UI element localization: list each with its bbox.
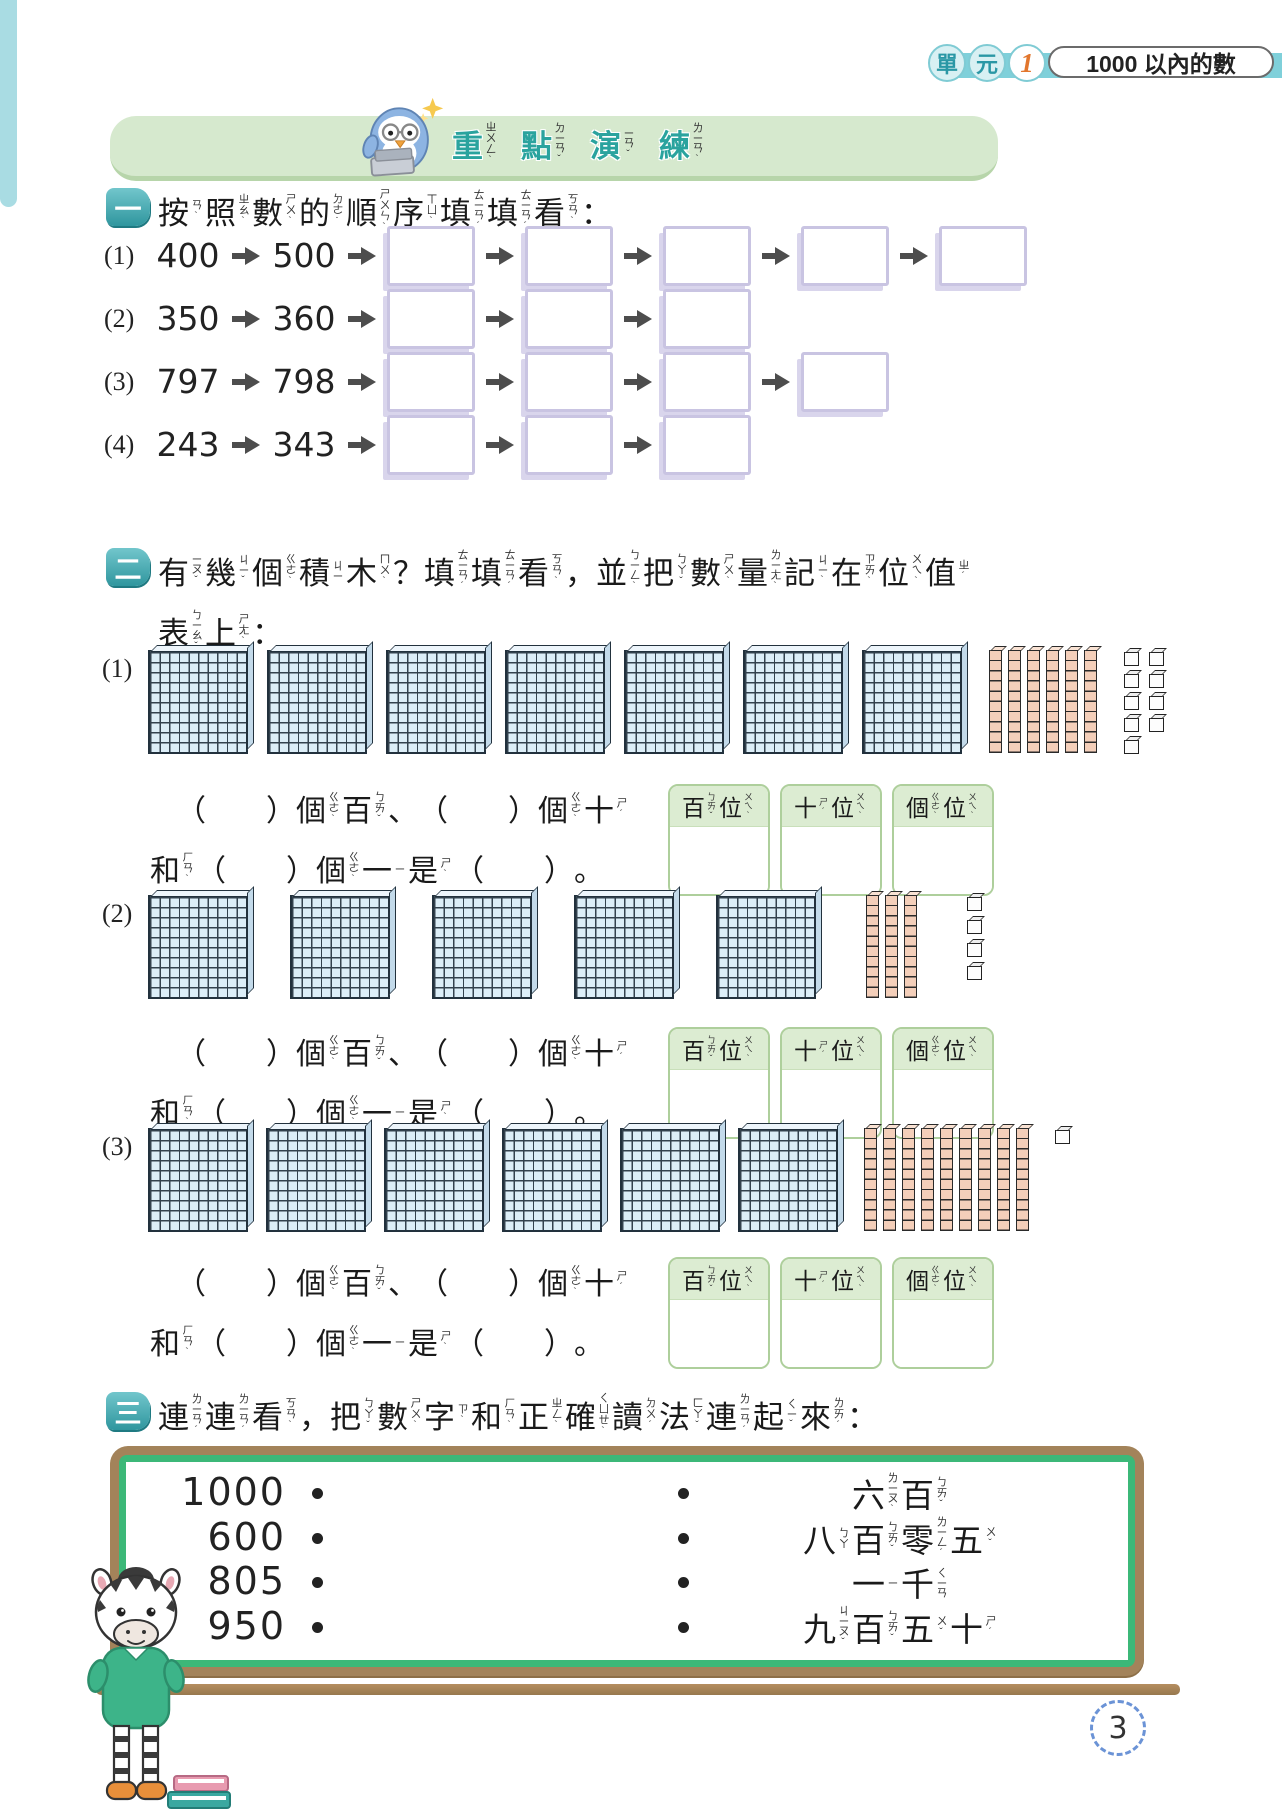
annotated-char: 個ㄍㄜˋ [296, 1029, 339, 1073]
annotated-char: 五ㄨˇ [950, 1514, 996, 1562]
section1-badge: 一 [106, 188, 150, 226]
annotated-char: 百ㄅㄞˇ [682, 789, 716, 823]
connector-dot-right[interactable] [678, 1488, 689, 1499]
zhuyin-annotation: ㄧ [393, 864, 405, 873]
text: （ ） [196, 846, 316, 890]
arrow-icon [485, 246, 515, 266]
annotated-char: 十ㄕˊ [794, 1262, 828, 1296]
annotated-char: 個ㄍㄜˋ [906, 1262, 940, 1296]
annotated-char: 千ㄑㄧㄢ [901, 1558, 947, 1606]
zhuyin-annotation: ㄍㄜˋ [327, 1034, 339, 1068]
sequence-blank-box[interactable] [525, 289, 613, 349]
matching-row: 1000六ㄌㄧㄡˋ百ㄅㄞˇ [126, 1472, 1128, 1517]
place-value-header: 百ㄅㄞˇ位ㄨㄟˋ [670, 1259, 768, 1300]
section3-heading: 連ㄌㄧㄢˊ連ㄌㄧㄢˊ看ㄎㄢˋ，把ㄅㄚˇ數ㄕㄨˋ字ㄗˋ和ㄏㄢˋ正ㄓㄥˋ確ㄑㄩㄝˋ讀… [158, 1388, 878, 1440]
hundred-block [386, 650, 486, 754]
answer-line-1: （ ）個ㄍㄜˋ百ㄅㄞˇ、（ ）個ㄍㄜˋ十ㄕˊ [150, 1255, 670, 1307]
annotated-char: 一ㄧ [852, 1558, 898, 1606]
annotated-char: 在ㄗㄞˋ [831, 548, 875, 593]
text: （ ） [176, 1029, 296, 1073]
sequence-row: (3)797798 [104, 350, 1032, 413]
blackboard: 1000六ㄌㄧㄡˋ百ㄅㄞˇ600八ㄅㄚ百ㄅㄞˇ零ㄌㄧㄥˊ五ㄨˇ805一ㄧ千ㄑㄧㄢ… [110, 1446, 1144, 1676]
hundred-block [716, 895, 816, 999]
hundred-block [148, 895, 248, 999]
hundred-block [432, 895, 532, 999]
annotated-char: 看ㄎㄢˋ [252, 1392, 296, 1437]
arrow-icon [347, 246, 377, 266]
zhuyin-annotation: ㄈㄚˇ [691, 1397, 703, 1431]
zhuyin-annotation: ㄨㄟˋ [855, 792, 865, 820]
connector-dot-left[interactable] [312, 1488, 323, 1499]
ten-rod [921, 1128, 934, 1231]
annotated-char: 是ㄕˋ [408, 846, 451, 890]
unit-badge-char-2: 元 [968, 44, 1006, 82]
annotated-char: 位ㄨㄟˋ [943, 789, 977, 823]
annotated-char: 數ㄕㄨˋ [377, 1392, 421, 1437]
annotated-char: 百ㄅㄞˇ [342, 1029, 385, 1073]
blocks-row [148, 650, 1166, 754]
ten-rod [978, 1128, 991, 1231]
place-value-column: 個ㄍㄜˋ位ㄨㄟˋ [892, 1257, 994, 1369]
one-cube [1149, 652, 1164, 666]
ten-rod [1016, 1128, 1029, 1231]
zhuyin-annotation: ㄉㄧㄢˇ [553, 122, 565, 165]
zhuyin-annotation: ㄨㄟˋ [910, 553, 922, 587]
place-value-cell[interactable] [782, 1300, 880, 1369]
place-value-cell[interactable] [670, 827, 768, 896]
unit-number-badge: 1 [1008, 44, 1046, 82]
annotated-char: 點ㄉㄧㄢˇ [521, 121, 565, 166]
text: （ ） [176, 786, 296, 830]
section3-badge: 三 [106, 1392, 150, 1430]
annotated-char: 字ㄗˋ [424, 1392, 468, 1437]
zhuyin-annotation: ㄨㄟˋ [743, 1265, 753, 1293]
annotated-char: 九ㄐㄧㄡˇ [803, 1603, 849, 1651]
place-value-cell[interactable] [670, 1300, 768, 1369]
zhuyin-annotation: ㄌㄧㄥˊ [935, 1516, 947, 1559]
zhuyin-annotation: ㄌㄞˊ [832, 1397, 844, 1431]
zhuyin-annotation: ㄏㄢˋ [181, 1324, 193, 1358]
connector-dot-right[interactable] [678, 1622, 689, 1633]
annotated-char: 木ㄇㄨˋ [346, 548, 390, 593]
matching-row: 950九ㄐㄧㄡˇ百ㄅㄞˇ五ㄨˇ十ㄕˊ [126, 1606, 1128, 1651]
text: 。 [574, 1319, 604, 1363]
place-value-cell[interactable] [894, 1300, 992, 1369]
ten-rod [866, 895, 879, 998]
connector-dot-left[interactable] [312, 1577, 323, 1588]
annotated-char: 百ㄅㄞˇ [852, 1603, 898, 1651]
annotated-char: 個ㄍㄜˋ [296, 1259, 339, 1303]
zhuyin-annotation: ㄧㄡˇ [190, 554, 202, 586]
zhuyin-annotation: ㄧ [393, 1107, 405, 1116]
zhuyin-annotation: ㄓㄨㄥˋ [484, 121, 496, 166]
annotated-char: 百ㄅㄞˇ [682, 1032, 716, 1066]
zhuyin-annotation: ㄅㄞˇ [886, 1521, 898, 1555]
hundred-block [738, 1128, 838, 1232]
text: 。 [574, 846, 604, 890]
annotated-char: 個ㄍㄜˋ [538, 786, 581, 830]
arrow-icon [347, 372, 377, 392]
zhuyin-annotation: ㄍㄜˋ [930, 1265, 940, 1293]
zhuyin-annotation: ㄒㄩˋ [425, 193, 437, 227]
annotated-char: 把ㄅㄚˇ [643, 548, 687, 593]
one-cube [1124, 740, 1139, 754]
connector-dot-left[interactable] [312, 1622, 323, 1633]
annotated-char: 讀ㄉㄨˊ [612, 1392, 656, 1437]
ten-rod [864, 1128, 877, 1231]
place-value-header: 十ㄕˊ位ㄨㄟˋ [782, 1259, 880, 1300]
zhuyin-annotation: ㄕˊ [615, 797, 627, 820]
annotated-char: 十ㄕˊ [794, 1032, 828, 1066]
zhuyin-annotation: ㄕˊ [818, 797, 828, 816]
zhuyin-annotation: ㄕˊ [615, 1270, 627, 1293]
zhuyin-annotation: ㄕˊ [818, 1270, 828, 1289]
annotated-char: 位ㄨㄟˋ [719, 1262, 753, 1296]
sequence-blank-box[interactable] [525, 415, 613, 475]
text: ， [299, 1392, 330, 1437]
sequence-blank-box[interactable] [525, 352, 613, 412]
arrow-icon [623, 246, 653, 266]
annotated-char: 百ㄅㄞˇ [901, 1469, 947, 1517]
hundred-block [624, 650, 724, 754]
annotated-char: 有ㄧㄡˇ [158, 548, 202, 593]
text: （ ） [454, 846, 574, 890]
annotated-char: 和ㄏㄢˋ [150, 846, 193, 890]
section2-heading-line1: 有ㄧㄡˇ幾ㄐㄧˇ個ㄍㄜˋ積ㄐㄧ木ㄇㄨˋ？填ㄊㄧㄢˊ填ㄊㄧㄢˊ看ㄎㄢˋ，並ㄅㄧㄥˋ… [158, 544, 972, 596]
annotated-char: 積ㄐㄧ [299, 548, 343, 593]
zhuyin-annotation: ㄇㄨˋ [378, 553, 390, 587]
annotated-char: 百ㄅㄞˇ [342, 1259, 385, 1303]
arrow-icon [623, 372, 653, 392]
sequence-blank-box[interactable] [663, 415, 751, 475]
one-cube [1055, 1130, 1070, 1144]
annotated-char: 個ㄍㄜˋ [296, 786, 339, 830]
text: 、 [388, 1029, 418, 1073]
zhuyin-annotation: ㄎㄢˋ [566, 193, 578, 227]
place-value-header: 百ㄅㄞˇ位ㄨㄟˋ [670, 786, 768, 827]
matching-row: 600八ㄅㄚ百ㄅㄞˇ零ㄌㄧㄥˊ五ㄨˇ [126, 1517, 1128, 1562]
annotated-char: 位ㄨㄟˋ [943, 1032, 977, 1066]
annotated-char: 十ㄕˊ [584, 1259, 627, 1303]
sequence-blank-box[interactable] [801, 226, 889, 286]
zhuyin-annotation: ㄍㄜˋ [284, 553, 296, 587]
place-value-cell[interactable] [894, 827, 992, 896]
blocks-row [148, 895, 982, 999]
zhuyin-annotation: ㄨㄟˋ [967, 1035, 977, 1063]
zhuyin-annotation: ㄢˋ [190, 199, 202, 222]
zhuyin-annotation: ㄕˊ [818, 1040, 828, 1059]
zhuyin-annotation: ㄨˇ [984, 1526, 996, 1549]
zhuyin-annotation: ㄨㄟˋ [855, 1265, 865, 1293]
unit-badge-char-1: 單 [928, 44, 966, 82]
annotated-char: 個ㄍㄜˋ [538, 1029, 581, 1073]
blackboard-border: 1000六ㄌㄧㄡˋ百ㄅㄞˇ600八ㄅㄚ百ㄅㄞˇ零ㄌㄧㄥˊ五ㄨˇ805一ㄧ千ㄑㄧㄢ… [119, 1455, 1135, 1667]
place-value-column: 十ㄕˊ位ㄨㄟˋ [780, 1257, 882, 1369]
sequence-blank-box[interactable] [801, 352, 889, 412]
zhuyin-annotation: ㄍㄜˋ [930, 1035, 940, 1063]
hundred-block [290, 895, 390, 999]
blocks-row [148, 1128, 1070, 1232]
annotated-char: 重ㄓㄨㄥˋ [452, 121, 496, 166]
text: ： [847, 1392, 878, 1437]
annotated-char: 零ㄌㄧㄥˊ [901, 1514, 947, 1562]
place-value-header: 個ㄍㄜˋ位ㄨㄟˋ [894, 1259, 992, 1300]
annotated-char: 幾ㄐㄧˇ [205, 548, 249, 593]
annotated-char: 一ㄧ [362, 1319, 405, 1363]
annotated-char: 十ㄕˊ [794, 789, 828, 823]
place-value-column: 百ㄅㄞˇ位ㄨㄟˋ [668, 1257, 770, 1369]
annotated-char: 把ㄅㄚˇ [330, 1392, 374, 1437]
annotated-char: 位ㄨㄟˋ [831, 1032, 865, 1066]
ten-rods-group [864, 1128, 1029, 1231]
one-cube [1149, 718, 1164, 732]
zhuyin-annotation: ㄐㄧㄡˇ [837, 1605, 849, 1648]
arrow-icon [347, 309, 377, 329]
one-cube [1124, 696, 1139, 710]
one-cube [1124, 674, 1139, 688]
answer-area: （ ）個ㄍㄜˋ百ㄅㄞˇ、（ ）個ㄍㄜˋ十ㄕˊ和ㄏㄢˋ（ ）個ㄍㄜˋ一ㄧ是ㄕˋ（ … [150, 782, 670, 894]
hundred-block [620, 1128, 720, 1232]
unit-title: 1000 以內的數 [1048, 46, 1274, 78]
hundred-block [502, 1128, 602, 1232]
annotated-char: 法ㄈㄚˇ [659, 1392, 703, 1437]
matching-area: 1000六ㄌㄧㄡˋ百ㄅㄞˇ600八ㄅㄚ百ㄅㄞˇ零ㄌㄧㄥˊ五ㄨˇ805一ㄧ千ㄑㄧㄢ… [126, 1462, 1128, 1660]
connector-dot-right[interactable] [678, 1533, 689, 1544]
zhuyin-annotation: ㄧㄢˇ [622, 128, 634, 160]
annotated-char: 百ㄅㄞˇ [342, 786, 385, 830]
ten-rod [997, 1128, 1010, 1231]
row-label: (1) [104, 241, 150, 271]
annotated-char: 位ㄨㄟˋ [719, 1032, 753, 1066]
zhuyin-annotation: ㄍㄜˋ [930, 792, 940, 820]
zhuyin-annotation: ㄧ [886, 1578, 898, 1587]
zhuyin-annotation: ㄎㄢˋ [284, 1397, 296, 1431]
annotated-char: 連ㄌㄧㄢˊ [706, 1392, 750, 1437]
zhuyin-annotation: ㄉㄜ˙ [331, 193, 343, 227]
sequence-blank-box[interactable] [939, 226, 1027, 286]
text: （ ） [418, 786, 538, 830]
arrow-icon [899, 246, 929, 266]
one-cubes-group [1055, 1130, 1070, 1144]
ten-rod [1084, 650, 1097, 753]
zhuyin-annotation: ㄐㄧˋ [816, 554, 828, 586]
zhuyin-annotation: ㄏㄢˋ [503, 1397, 515, 1431]
zhuyin-annotation: ㄎㄢˋ [550, 553, 562, 587]
penguin-mascot-icon [356, 94, 452, 180]
zhuyin-annotation: ㄅㄚˇ [675, 553, 687, 587]
page-edge-decoration [0, 0, 17, 207]
row-label: (2) [104, 304, 150, 334]
zhuyin-annotation: ㄅㄞˇ [706, 1035, 716, 1063]
place-value-column: 個ㄍㄜˋ位ㄨㄟˋ [892, 784, 994, 896]
annotated-char: 百ㄅㄞˇ [682, 1262, 716, 1296]
answer-area: （ ）個ㄍㄜˋ百ㄅㄞˇ、（ ）個ㄍㄜˋ十ㄕˊ和ㄏㄢˋ（ ）個ㄍㄜˋ一ㄧ是ㄕˋ（ … [150, 1025, 670, 1137]
sequence-blank-box[interactable] [387, 289, 475, 349]
sequence-blank-box[interactable] [663, 289, 751, 349]
ten-rod [1065, 650, 1078, 753]
annotated-char: 起ㄑㄧˇ [753, 1392, 797, 1437]
zhuyin-annotation: ㄕˋ [439, 1100, 451, 1123]
annotated-char: 值ㄓˊ [925, 548, 969, 593]
zhuyin-annotation: ㄑㄧˇ [785, 1398, 797, 1430]
zhuyin-annotation: ㄍㄜˋ [347, 1324, 359, 1358]
text: 、 [388, 786, 418, 830]
ten-rod [1008, 650, 1021, 753]
sequence-blank-box[interactable] [525, 226, 613, 286]
text: ？ [393, 548, 424, 593]
zhuyin-annotation: ㄍㄜˋ [327, 791, 339, 825]
zhuyin-annotation: ㄧ [393, 1337, 405, 1346]
sequence-row: (1)400500 [104, 224, 1032, 287]
text: （ ） [454, 1319, 574, 1363]
annotated-char: 記ㄐㄧˋ [784, 548, 828, 593]
annotated-char: 位ㄨㄟˋ [943, 1262, 977, 1296]
zhuyin-annotation: ㄕˋ [439, 1330, 451, 1353]
match-reading: 八ㄅㄚ百ㄅㄞˇ零ㄌㄧㄥˊ五ㄨˇ [716, 1514, 1086, 1562]
place-value-header: 個ㄍㄜˋ位ㄨㄟˋ [894, 1029, 992, 1070]
row-label: (3) [104, 367, 150, 397]
chalk-tray [96, 1684, 1180, 1695]
hundred-block [148, 650, 248, 754]
zhuyin-annotation: ㄨㄟˋ [967, 1265, 977, 1293]
one-cube [1124, 652, 1139, 666]
text: （ ） [418, 1029, 538, 1073]
place-value-column: 十ㄕˊ位ㄨㄟˋ [780, 784, 882, 896]
sequence-blank-box[interactable] [663, 352, 751, 412]
zhuyin-annotation: ㄌㄧㄡˋ [886, 1472, 898, 1515]
zhuyin-annotation: ㄌㄧㄢˋ [691, 122, 703, 165]
zhuyin-annotation: ㄅㄞˇ [373, 1264, 385, 1298]
zhuyin-annotation: ㄨㄟˋ [743, 792, 753, 820]
annotated-char: 六ㄌㄧㄡˋ [852, 1469, 898, 1517]
match-number: 600 [166, 1515, 286, 1559]
arrow-icon [231, 435, 261, 455]
zhuyin-annotation: ㄕㄤˋ [237, 613, 249, 647]
sequence-row: (2)350360 [104, 287, 1032, 350]
zhuyin-annotation: ㄨㄟˋ [743, 1035, 753, 1063]
zhuyin-annotation: ㄌㄧㄢˊ [237, 1393, 249, 1436]
annotated-char: 位ㄨㄟˋ [719, 789, 753, 823]
sequence-blank-box[interactable] [387, 226, 475, 286]
ten-rod [1027, 650, 1040, 753]
problem-label: (2) [102, 899, 132, 929]
zhuyin-annotation: ㄨㄟˋ [967, 792, 977, 820]
ten-rod [904, 895, 917, 998]
one-cubes-group [967, 897, 982, 980]
annotated-char: 位ㄨㄟˋ [831, 789, 865, 823]
arrow-icon [347, 435, 377, 455]
one-cubes-group [1124, 652, 1166, 754]
connector-dot-left[interactable] [312, 1533, 323, 1544]
annotated-char: 五ㄨˇ [901, 1603, 947, 1651]
one-cube [1149, 696, 1164, 710]
zhuyin-annotation: ㄗㄞˋ [863, 553, 875, 587]
arrow-icon [231, 246, 261, 266]
place-value-header: 十ㄕˊ位ㄨㄟˋ [782, 786, 880, 827]
ten-rod [940, 1128, 953, 1231]
worksheet-page: 單 元 1 1000 以內的數 重ㄓㄨㄥˋ點ㄉㄧㄢˇ演ㄧㄢˇ練ㄌㄧㄢˋ 一 按ㄢ… [0, 0, 1282, 1813]
zhuyin-annotation: ㄨㄟˋ [855, 1035, 865, 1063]
hundred-block [148, 1128, 248, 1232]
zhuyin-annotation: ㄅㄞˇ [935, 1476, 947, 1510]
hundred-block [862, 650, 962, 754]
zhuyin-annotation: ㄍㄜˋ [569, 1034, 581, 1068]
sequence-number: 343 [266, 425, 342, 464]
sequence-number: 798 [266, 362, 342, 401]
one-cube [967, 897, 982, 911]
text: 、 [388, 1259, 418, 1303]
one-cube [1149, 674, 1164, 688]
sequence-blank-box[interactable] [387, 415, 475, 475]
text: （ ） [196, 1319, 316, 1363]
arrow-icon [485, 435, 515, 455]
zhuyin-annotation: ㄅㄞˇ [373, 791, 385, 825]
annotated-char: 確ㄑㄩㄝˋ [565, 1392, 609, 1437]
zhuyin-annotation: ㄐㄧˇ [237, 554, 249, 586]
zhuyin-annotation: ㄑㄩㄝˋ [597, 1392, 609, 1437]
annotated-char: 正ㄓㄥˋ [518, 1392, 562, 1437]
annotated-char: 百ㄅㄞˇ [852, 1514, 898, 1562]
zhuyin-annotation: ㄅㄞˇ [706, 1265, 716, 1293]
answer-line-1: （ ）個ㄍㄜˋ百ㄅㄞˇ、（ ）個ㄍㄜˋ十ㄕˊ [150, 1025, 670, 1077]
annotated-char: 個ㄍㄜˋ [252, 548, 296, 593]
annotated-char: 個ㄍㄜˋ [316, 1319, 359, 1363]
connector-dot-right[interactable] [678, 1577, 689, 1588]
annotated-char: 連ㄌㄧㄢˊ [205, 1392, 249, 1437]
place-value-column: 百ㄅㄞˇ位ㄨㄟˋ [668, 784, 770, 896]
zhuyin-annotation: ㄅㄧㄥˋ [628, 549, 640, 592]
place-value-header: 個ㄍㄜˋ位ㄨㄟˋ [894, 786, 992, 827]
annotated-char: 十ㄕˊ [584, 786, 627, 830]
ten-rods-group [989, 650, 1097, 753]
sequence-number: 350 [150, 299, 226, 338]
place-value-table: 百ㄅㄞˇ位ㄨㄟˋ十ㄕˊ位ㄨㄟˋ個ㄍㄜˋ位ㄨㄟˋ [668, 1257, 994, 1369]
one-cube [967, 920, 982, 934]
sequence-blank-box[interactable] [387, 352, 475, 412]
zhuyin-annotation: ㄑㄧㄢ [935, 1567, 947, 1598]
zhuyin-annotation: ㄨˇ [935, 1615, 947, 1638]
zhuyin-annotation: ㄅㄚˇ [362, 1397, 374, 1431]
annotated-char: 和ㄏㄢˋ [471, 1392, 515, 1437]
place-value-cell[interactable] [782, 827, 880, 896]
ten-rod [883, 1128, 896, 1231]
row-label: (4) [104, 430, 150, 460]
annotated-char: 一ㄧ [362, 846, 405, 890]
answer-line-2: 和ㄏㄢˋ（ ）個ㄍㄜˋ一ㄧ是ㄕˋ（ ）。 [150, 842, 670, 894]
place-value-header: 十ㄕˊ位ㄨㄟˋ [782, 1029, 880, 1070]
arrow-icon [623, 309, 653, 329]
sequence-number: 797 [150, 362, 226, 401]
annotated-char: 和ㄏㄢˋ [150, 1319, 193, 1363]
arrow-icon [231, 309, 261, 329]
annotated-char: 八ㄅㄚ [803, 1514, 849, 1562]
zhuyin-annotation: ㄊㄧㄢˊ [503, 549, 515, 592]
annotated-char: 填ㄊㄧㄢˊ [424, 548, 468, 593]
zhuyin-annotation: ㄍㄜˋ [569, 1264, 581, 1298]
arrow-icon [623, 435, 653, 455]
sequence-rows: (1)400500(2)350360(3)797798(4)243343 [104, 224, 1032, 476]
ten-rod [1046, 650, 1059, 753]
sequence-blank-box[interactable] [663, 226, 751, 286]
arrow-icon [231, 372, 261, 392]
zhuyin-annotation: ㄅㄚ [837, 1527, 849, 1549]
annotated-char: 位ㄨㄟˋ [831, 1262, 865, 1296]
annotated-char: 個ㄍㄜˋ [906, 789, 940, 823]
arrow-icon [485, 372, 515, 392]
sequence-number: 243 [150, 425, 226, 464]
zhuyin-annotation: ㄕㄨˋ [722, 553, 734, 587]
annotated-char: 個ㄍㄜˋ [538, 1259, 581, 1303]
